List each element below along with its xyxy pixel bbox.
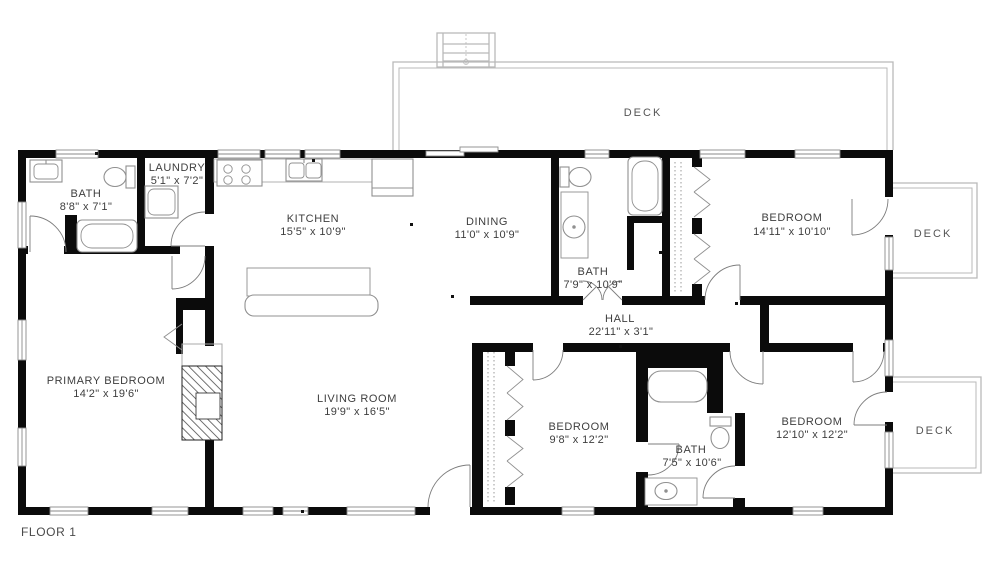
deck-top-outline bbox=[393, 33, 893, 150]
room-dims-bedroom-3: 12'10" x 12'2" bbox=[776, 429, 848, 441]
deck-right-upper-label: DECK bbox=[914, 228, 953, 240]
bath3-right-door bbox=[703, 466, 735, 498]
room-dims-bedroom-1: 14'11" x 10'10" bbox=[753, 226, 831, 238]
room-dims-bath-1: 8'8" x 7'1" bbox=[60, 201, 113, 213]
room-dims-living-room: 19'9" x 16'5" bbox=[324, 406, 390, 418]
laundry-washer bbox=[145, 186, 178, 218]
room-label-living-room: LIVING ROOM bbox=[317, 393, 397, 405]
room-label-bath-3: BATH bbox=[676, 444, 707, 456]
bath1-bathtub bbox=[77, 220, 137, 252]
kitchen-island bbox=[245, 268, 378, 316]
living-room-entry-door bbox=[428, 465, 470, 507]
bath1-toilet bbox=[104, 166, 135, 188]
room-label-kitchen: KITCHEN bbox=[287, 213, 339, 225]
room-dims-kitchen: 15'5" x 10'9" bbox=[280, 226, 346, 238]
fireplace-chimney bbox=[182, 344, 222, 440]
bedroom3-deck-door bbox=[854, 392, 887, 425]
bath1-vanity-sink bbox=[30, 160, 62, 182]
deck-top-label: DECK bbox=[624, 107, 663, 119]
kitchen-stove bbox=[217, 160, 262, 186]
deck-right-lower-label: DECK bbox=[916, 425, 955, 437]
room-dims-bath-3: 7'5" x 10'6" bbox=[662, 457, 721, 469]
floor-plan: BATH 8'8" x 7'1" LAUNDRY 5'1" x 7'2" KIT… bbox=[0, 0, 1000, 572]
room-label-laundry: LAUNDRY bbox=[149, 162, 206, 174]
kitchen-refrigerator bbox=[372, 159, 413, 196]
bath2-bathtub bbox=[628, 157, 662, 215]
room-label-bedroom-2: BEDROOM bbox=[548, 421, 609, 433]
bath3-bathtub bbox=[648, 371, 707, 402]
room-label-bath-1: BATH bbox=[71, 188, 102, 200]
room-label-bath-2: BATH bbox=[578, 266, 609, 278]
floor-label: FLOOR 1 bbox=[21, 525, 77, 539]
labels: BATH 8'8" x 7'1" LAUNDRY 5'1" x 7'2" KIT… bbox=[21, 107, 954, 539]
doors bbox=[30, 199, 888, 507]
bath3-toilet bbox=[710, 417, 731, 449]
bedroom3-closet-door bbox=[853, 351, 884, 382]
bath3-vanity-sink bbox=[645, 478, 697, 505]
room-label-bedroom-3: BEDROOM bbox=[781, 416, 842, 428]
bath2-toilet bbox=[560, 167, 591, 187]
room-dims-dining: 11'0" x 10'9" bbox=[455, 229, 520, 241]
room-label-dining: DINING bbox=[466, 216, 508, 228]
room-label-hall: HALL bbox=[605, 313, 635, 325]
primary-bedroom-door bbox=[172, 256, 205, 289]
room-label-bedroom-1: BEDROOM bbox=[761, 212, 822, 224]
room-dims-primary-bedroom: 14'2" x 19'6" bbox=[73, 388, 139, 400]
kitchen-sink bbox=[286, 159, 322, 181]
bedroom2-entry-door bbox=[533, 350, 563, 380]
bath2-vanity-sink bbox=[561, 192, 588, 258]
floor-plan-svg: BATH 8'8" x 7'1" LAUNDRY 5'1" x 7'2" KIT… bbox=[0, 0, 1000, 572]
door-openings bbox=[28, 197, 894, 516]
room-dims-bedroom-2: 9'8" x 12'2" bbox=[549, 434, 608, 446]
bedroom1-entry-door bbox=[705, 265, 740, 300]
room-label-primary-bedroom: PRIMARY BEDROOM bbox=[47, 375, 166, 387]
room-dims-laundry: 5'1" x 7'2" bbox=[151, 175, 204, 187]
room-dims-bath-2: 7'9" x 10'9" bbox=[563, 279, 622, 291]
room-dims-hall: 22'11" x 3'1" bbox=[589, 326, 654, 338]
bedroom1-deck-door bbox=[852, 199, 888, 235]
bedroom3-entry-door bbox=[730, 351, 763, 384]
